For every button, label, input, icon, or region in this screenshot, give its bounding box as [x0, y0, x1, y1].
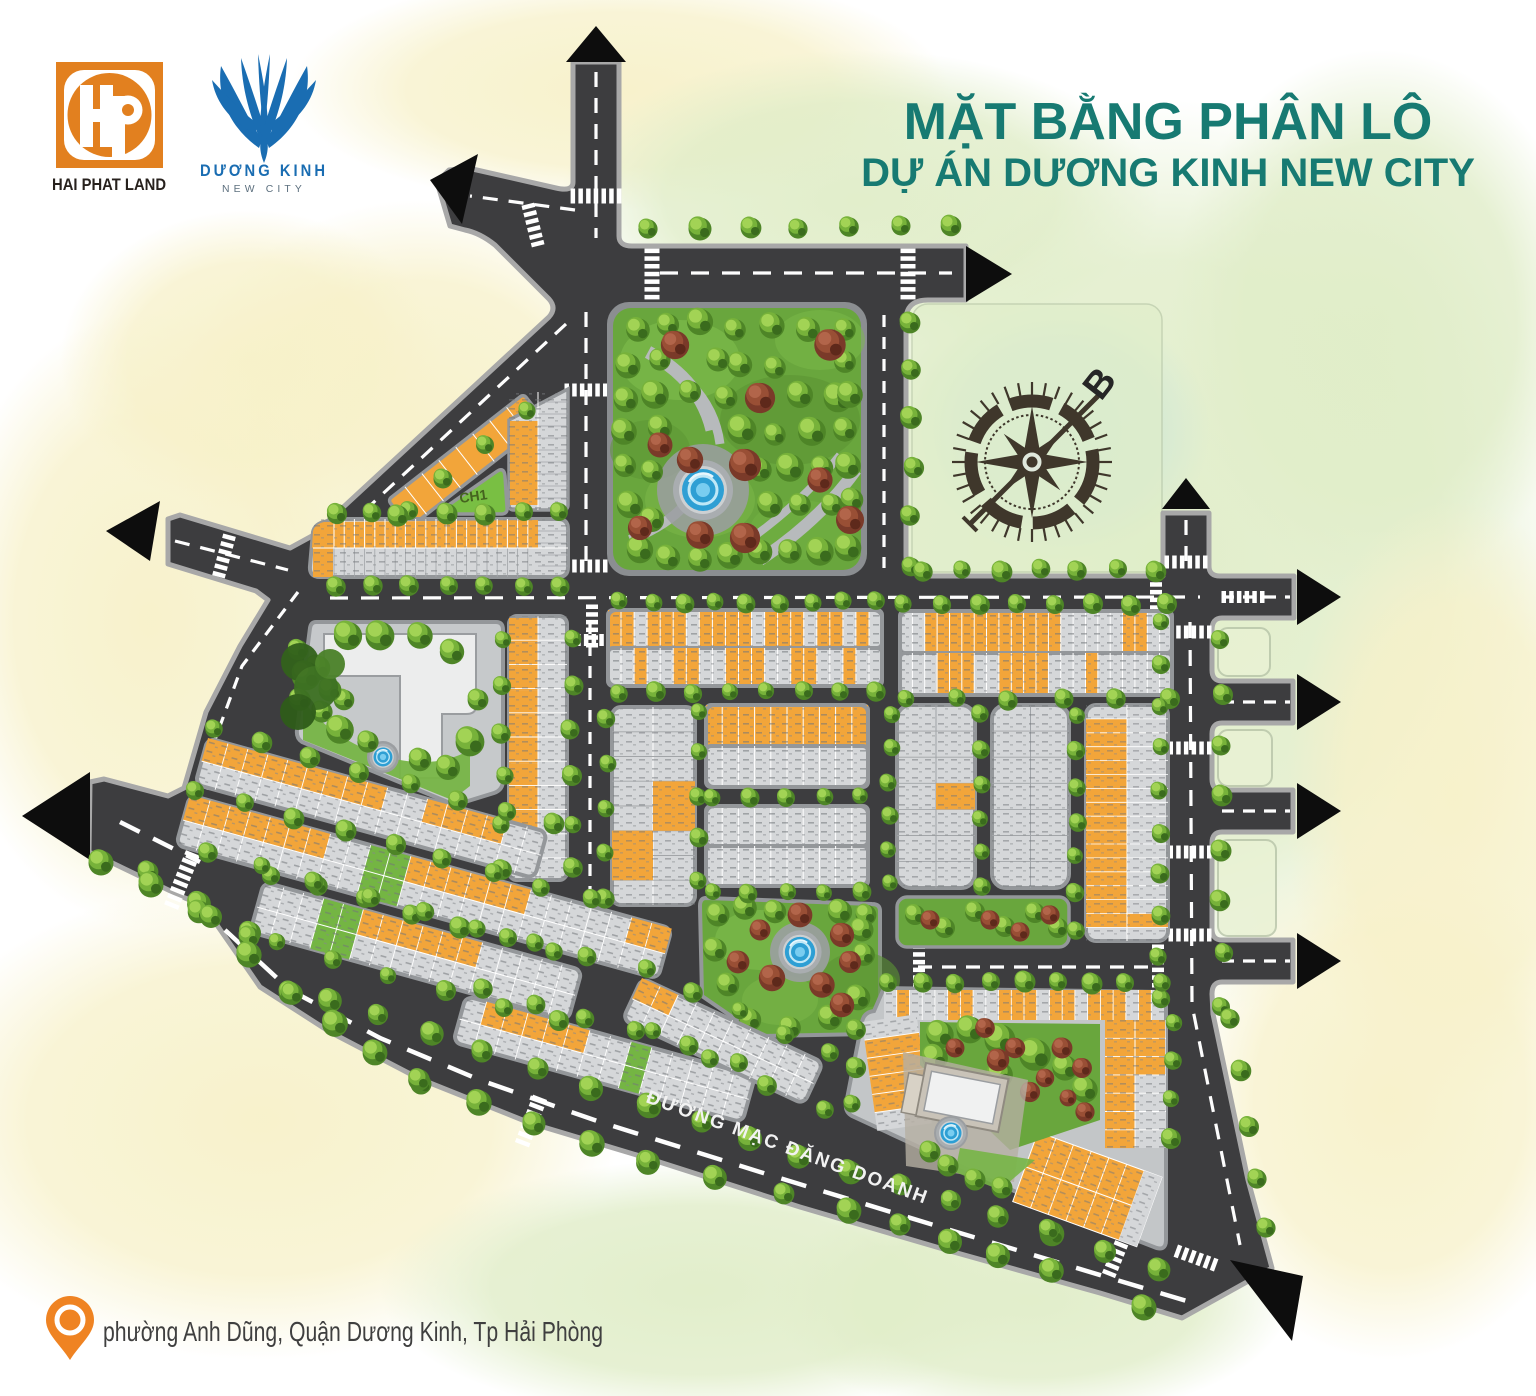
- svg-text:DƯƠNG KINH: DƯƠNG KINH: [200, 161, 328, 180]
- svg-text:DỰ ÁN DƯƠNG KINH NEW CITY: DỰ ÁN DƯƠNG KINH NEW CITY: [861, 150, 1475, 195]
- svg-text:HAI PHAT LAND: HAI PHAT LAND: [52, 175, 166, 194]
- svg-text:MẶT BẰNG PHÂN LÔ: MẶT BẰNG PHÂN LÔ: [904, 92, 1433, 151]
- svg-text:NEW CITY: NEW CITY: [222, 184, 306, 195]
- svg-text:phường Anh Dũng, Quận Dương Ki: phường Anh Dũng, Quận Dương Kinh, Tp Hải…: [103, 1316, 603, 1347]
